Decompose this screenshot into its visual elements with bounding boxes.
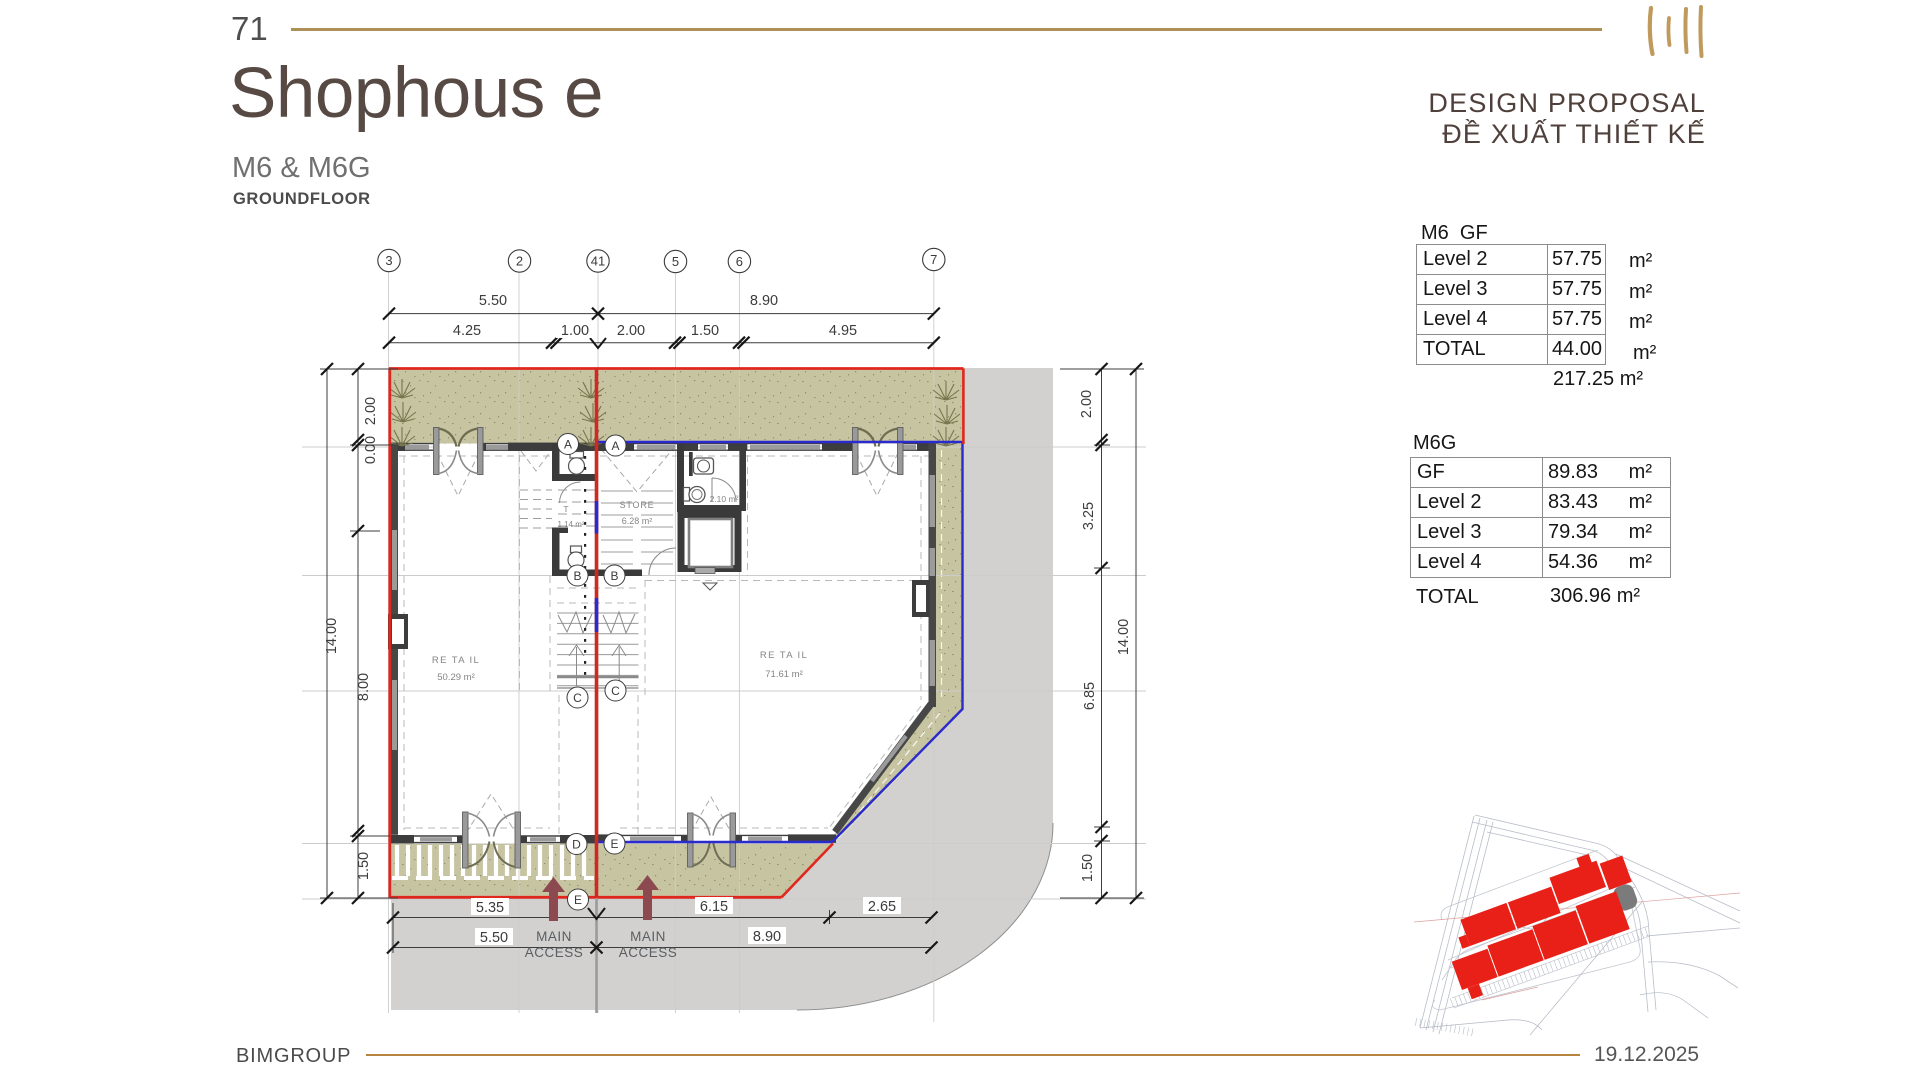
svg-text:ACCESS: ACCESS <box>619 945 678 960</box>
svg-text:2: 2 <box>516 254 523 269</box>
svg-text:RE TA IL: RE TA IL <box>432 655 480 666</box>
svg-text:4.25: 4.25 <box>453 323 481 339</box>
svg-text:0.00: 0.00 <box>363 436 379 464</box>
svg-text:8.90: 8.90 <box>753 929 781 945</box>
svg-text:2.65: 2.65 <box>868 899 896 915</box>
svg-text:8.90: 8.90 <box>750 293 778 309</box>
svg-text:6.28 m²: 6.28 m² <box>622 516 653 526</box>
svg-text:14.00: 14.00 <box>1116 619 1132 655</box>
svg-text:MAIN: MAIN <box>630 929 666 944</box>
svg-text:A: A <box>611 439 619 453</box>
svg-text:8.00: 8.00 <box>356 673 372 701</box>
svg-text:71.61 m²: 71.61 m² <box>765 669 803 680</box>
svg-text:C: C <box>611 684 620 698</box>
svg-text:A: A <box>564 438 572 452</box>
svg-text:3: 3 <box>385 253 392 268</box>
svg-text:6.15: 6.15 <box>700 899 728 915</box>
svg-text:MAIN: MAIN <box>536 929 572 944</box>
svg-text:5.50: 5.50 <box>480 930 508 946</box>
svg-text:6.85: 6.85 <box>1082 682 1098 710</box>
svg-text:14.00: 14.00 <box>324 618 340 654</box>
svg-text:2.10 m²: 2.10 m² <box>710 494 739 504</box>
svg-text:2.00: 2.00 <box>1079 390 1095 418</box>
svg-text:B: B <box>573 569 581 583</box>
svg-text:STORE: STORE <box>620 500 655 510</box>
svg-text:E: E <box>610 837 618 851</box>
svg-text:B: B <box>610 569 618 583</box>
svg-text:1.50: 1.50 <box>1080 854 1096 882</box>
svg-text:5.50: 5.50 <box>479 293 507 309</box>
svg-text:E: E <box>574 893 582 907</box>
svg-text:ACCESS: ACCESS <box>525 945 584 960</box>
svg-text:RE TA IL: RE TA IL <box>760 650 808 661</box>
svg-text:2.00: 2.00 <box>363 397 379 425</box>
svg-text:41: 41 <box>591 254 605 269</box>
svg-text:7: 7 <box>930 252 937 267</box>
svg-text:6: 6 <box>736 254 743 269</box>
svg-text:D: D <box>572 838 581 852</box>
svg-text:1.50: 1.50 <box>691 323 719 339</box>
svg-text:2.00: 2.00 <box>617 323 645 339</box>
svg-text:1.50: 1.50 <box>356 852 372 880</box>
svg-text:T: T <box>563 504 568 514</box>
svg-text:1.00: 1.00 <box>561 323 589 339</box>
svg-text:4.95: 4.95 <box>829 323 857 339</box>
svg-text:5: 5 <box>672 254 679 269</box>
svg-text:1.14 m²: 1.14 m² <box>557 520 584 529</box>
svg-text:50.29 m²: 50.29 m² <box>437 672 475 683</box>
svg-text:C: C <box>573 691 582 705</box>
svg-text:5.35: 5.35 <box>476 900 504 916</box>
svg-text:3.25: 3.25 <box>1081 502 1097 530</box>
